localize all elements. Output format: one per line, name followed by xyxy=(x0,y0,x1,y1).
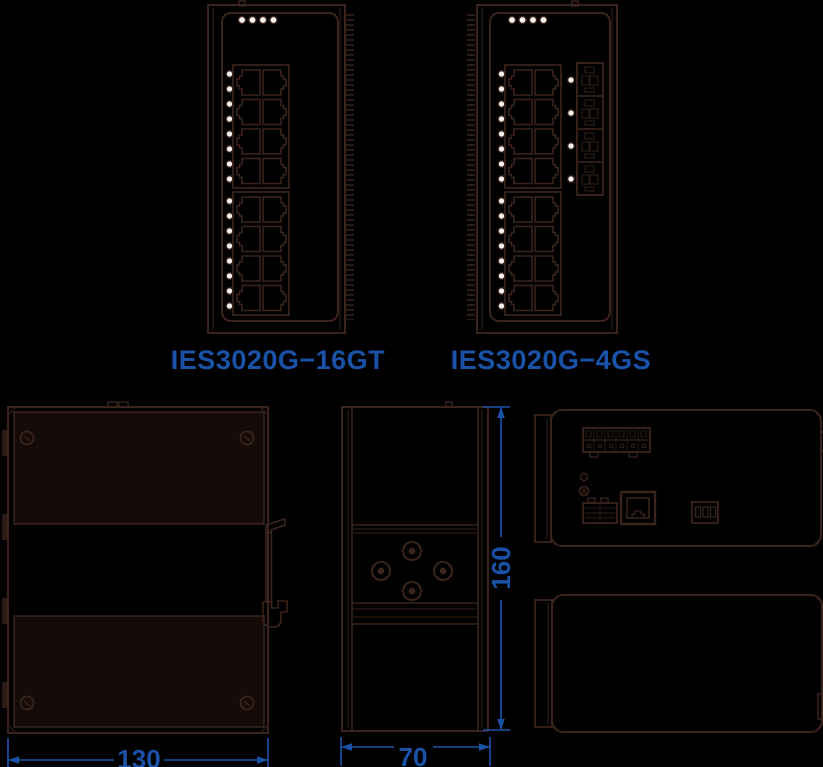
rj45-port xyxy=(509,100,532,125)
faceplate xyxy=(490,13,610,321)
port-led xyxy=(498,303,505,310)
port-led xyxy=(226,71,233,78)
rj45-port xyxy=(509,227,532,252)
side-outline xyxy=(342,407,488,731)
rj45-port xyxy=(263,100,286,125)
status-led xyxy=(508,16,515,23)
dimension-width: 130 xyxy=(8,738,268,767)
rj45-port xyxy=(535,100,558,125)
port-led xyxy=(498,273,505,280)
status-led xyxy=(238,16,245,23)
status-led xyxy=(259,16,266,23)
port-led xyxy=(498,288,505,295)
side-view xyxy=(342,402,488,731)
port-block xyxy=(505,192,561,315)
mount-plate-bottom xyxy=(14,616,264,727)
depth-value: 70 xyxy=(399,742,428,767)
rj45-port xyxy=(237,100,260,125)
ports-and-leds-4gs xyxy=(498,16,603,315)
port-led xyxy=(498,198,505,205)
rj45-port xyxy=(509,129,532,154)
rj45-port xyxy=(535,159,558,184)
dimension-depth: 70 xyxy=(341,737,490,767)
relay-terminal xyxy=(583,498,617,523)
port-led xyxy=(226,176,233,183)
port-led xyxy=(226,228,233,235)
sfp-latch xyxy=(585,187,594,191)
chassis-outline xyxy=(477,5,617,333)
front-view-16gt xyxy=(208,1,350,333)
port-block xyxy=(505,65,561,188)
rj45-port xyxy=(509,286,532,311)
sfp-cavity xyxy=(582,175,589,184)
product-diagram-page: IES3020G−16GT IES3020G−4GS xyxy=(0,0,823,767)
port-led xyxy=(498,228,505,235)
port-led xyxy=(498,116,505,123)
rj45-port xyxy=(263,70,286,95)
port-led xyxy=(226,146,233,153)
sfp-cavity xyxy=(582,76,589,85)
power-terminal xyxy=(583,428,650,457)
sfp-latch xyxy=(585,121,594,125)
port-led xyxy=(226,273,233,280)
status-led xyxy=(529,16,536,23)
port-led xyxy=(498,101,505,108)
rj45-port xyxy=(237,227,260,252)
front-view-4gs xyxy=(471,1,617,333)
rj45-port xyxy=(263,286,286,311)
top-outline xyxy=(551,410,821,546)
rj45-port xyxy=(535,286,558,311)
status-led xyxy=(519,16,526,23)
port-led xyxy=(498,146,505,153)
rj45-port xyxy=(263,159,286,184)
sfp-latch xyxy=(585,166,594,172)
rj45-port xyxy=(535,256,558,281)
port-led xyxy=(568,176,575,183)
rj45-port xyxy=(263,256,286,281)
port-led xyxy=(226,101,233,108)
port-led xyxy=(226,213,233,220)
port-led xyxy=(498,131,505,138)
port-led xyxy=(226,131,233,138)
port-led xyxy=(498,86,505,93)
din-rail-clip xyxy=(263,519,287,627)
port-block xyxy=(233,192,289,315)
port-led xyxy=(498,71,505,78)
sfp-latch xyxy=(585,133,594,139)
sfp-cavity xyxy=(582,142,589,151)
model-label-16gt: IES3020G−16GT xyxy=(171,345,385,375)
left-cap xyxy=(535,600,552,727)
dip-switch xyxy=(692,502,718,523)
mounting-screws xyxy=(372,542,452,600)
rj45-port xyxy=(535,197,558,222)
port-led xyxy=(226,86,233,93)
sfp-latch xyxy=(585,100,594,106)
sfp-cavity xyxy=(590,76,598,85)
port-led xyxy=(226,258,233,265)
rj45-port xyxy=(535,70,558,95)
rj45-port xyxy=(237,256,260,281)
model-label-4gs: IES3020G−4GS xyxy=(451,345,651,375)
rj45-port xyxy=(237,129,260,154)
rj45-port xyxy=(237,70,260,95)
bottom-outline xyxy=(552,595,822,732)
port-led xyxy=(568,110,575,117)
sfp-latch xyxy=(585,88,594,92)
rj45-port xyxy=(509,70,532,95)
left-cap xyxy=(535,415,551,542)
rj45-port xyxy=(509,197,532,222)
grounding-screw xyxy=(580,487,589,496)
port-led xyxy=(498,161,505,168)
status-led xyxy=(270,16,277,23)
status-led xyxy=(540,16,547,23)
sfp-cavity xyxy=(590,142,598,151)
port-led xyxy=(498,176,505,183)
rj45-port xyxy=(535,129,558,154)
rj45-port xyxy=(263,129,286,154)
height-value: 160 xyxy=(486,546,516,589)
port-led xyxy=(226,161,233,168)
product-diagram: IES3020G−16GT IES3020G−4GS xyxy=(0,0,823,767)
port-led xyxy=(226,243,233,250)
rj45-port xyxy=(237,159,260,184)
mount-plate-top xyxy=(14,412,264,524)
rj45-port xyxy=(263,197,286,222)
width-value: 130 xyxy=(117,744,160,767)
port-led xyxy=(226,303,233,310)
port-led xyxy=(498,258,505,265)
side-body xyxy=(352,407,478,731)
port-led xyxy=(226,198,233,205)
sfp-cavity xyxy=(590,175,598,184)
sfp-cavity xyxy=(590,109,598,118)
bottom-view xyxy=(535,595,823,732)
rj45-port xyxy=(509,256,532,281)
sfp-latch xyxy=(585,154,594,158)
port-led xyxy=(226,288,233,295)
rj45-port xyxy=(535,227,558,252)
port-led xyxy=(498,213,505,220)
rj45-port xyxy=(237,197,260,222)
rj45-port xyxy=(509,159,532,184)
reset-button xyxy=(581,474,588,481)
port-led xyxy=(226,116,233,123)
port-led xyxy=(568,77,575,84)
port-block xyxy=(233,65,289,188)
rj45-port xyxy=(263,227,286,252)
top-view xyxy=(535,410,823,546)
rear-view xyxy=(5,402,287,733)
port-led xyxy=(568,143,575,150)
sfp-latch xyxy=(585,67,594,73)
ports-and-leds-16gt xyxy=(226,16,289,315)
port-led xyxy=(498,243,505,250)
rj45-port xyxy=(237,286,260,311)
chassis-outline xyxy=(208,5,345,333)
console-port xyxy=(621,492,655,524)
sfp-cavity xyxy=(582,109,589,118)
status-led xyxy=(249,16,256,23)
